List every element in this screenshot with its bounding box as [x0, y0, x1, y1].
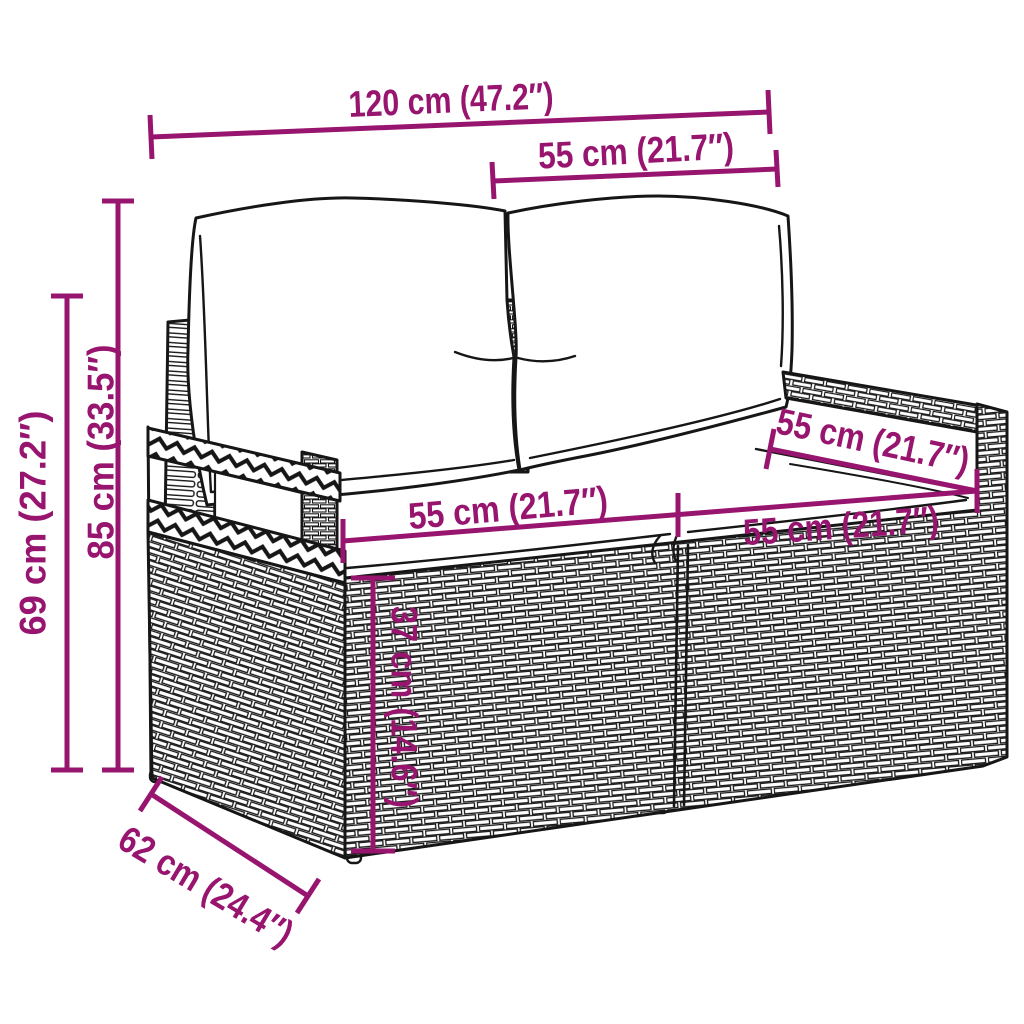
dim-total-height: 85 cm (33.5″): [81, 201, 135, 770]
dim-armrest-height-label: 69 cm (27.2″): [13, 411, 54, 636]
sofa-dimension-diagram: 120 cm (47.2″) 55 cm (21.7″) 85 cm (33.5…: [0, 0, 1024, 1024]
dim-seat-width-left-label: 55 cm (21.7″): [407, 479, 610, 537]
dim-total-height-label: 85 cm (33.5″): [81, 345, 122, 560]
dim-overall-width-label: 120 cm (47.2″): [348, 75, 555, 125]
dim-backrest-width-label: 55 cm (21.7″): [537, 125, 735, 176]
dim-base-depth-label: 62 cm (24.4″): [111, 818, 300, 954]
dim-backrest-width: 55 cm (21.7″): [492, 125, 778, 199]
dimension-diagram-page: 120 cm (47.2″) 55 cm (21.7″) 85 cm (33.5…: [0, 0, 1024, 1024]
dim-seat-height-label: 37 cm (14.6″): [384, 606, 425, 808]
dim-armrest-height: 69 cm (27.2″): [13, 296, 84, 770]
back-cushion-right: [508, 196, 792, 470]
